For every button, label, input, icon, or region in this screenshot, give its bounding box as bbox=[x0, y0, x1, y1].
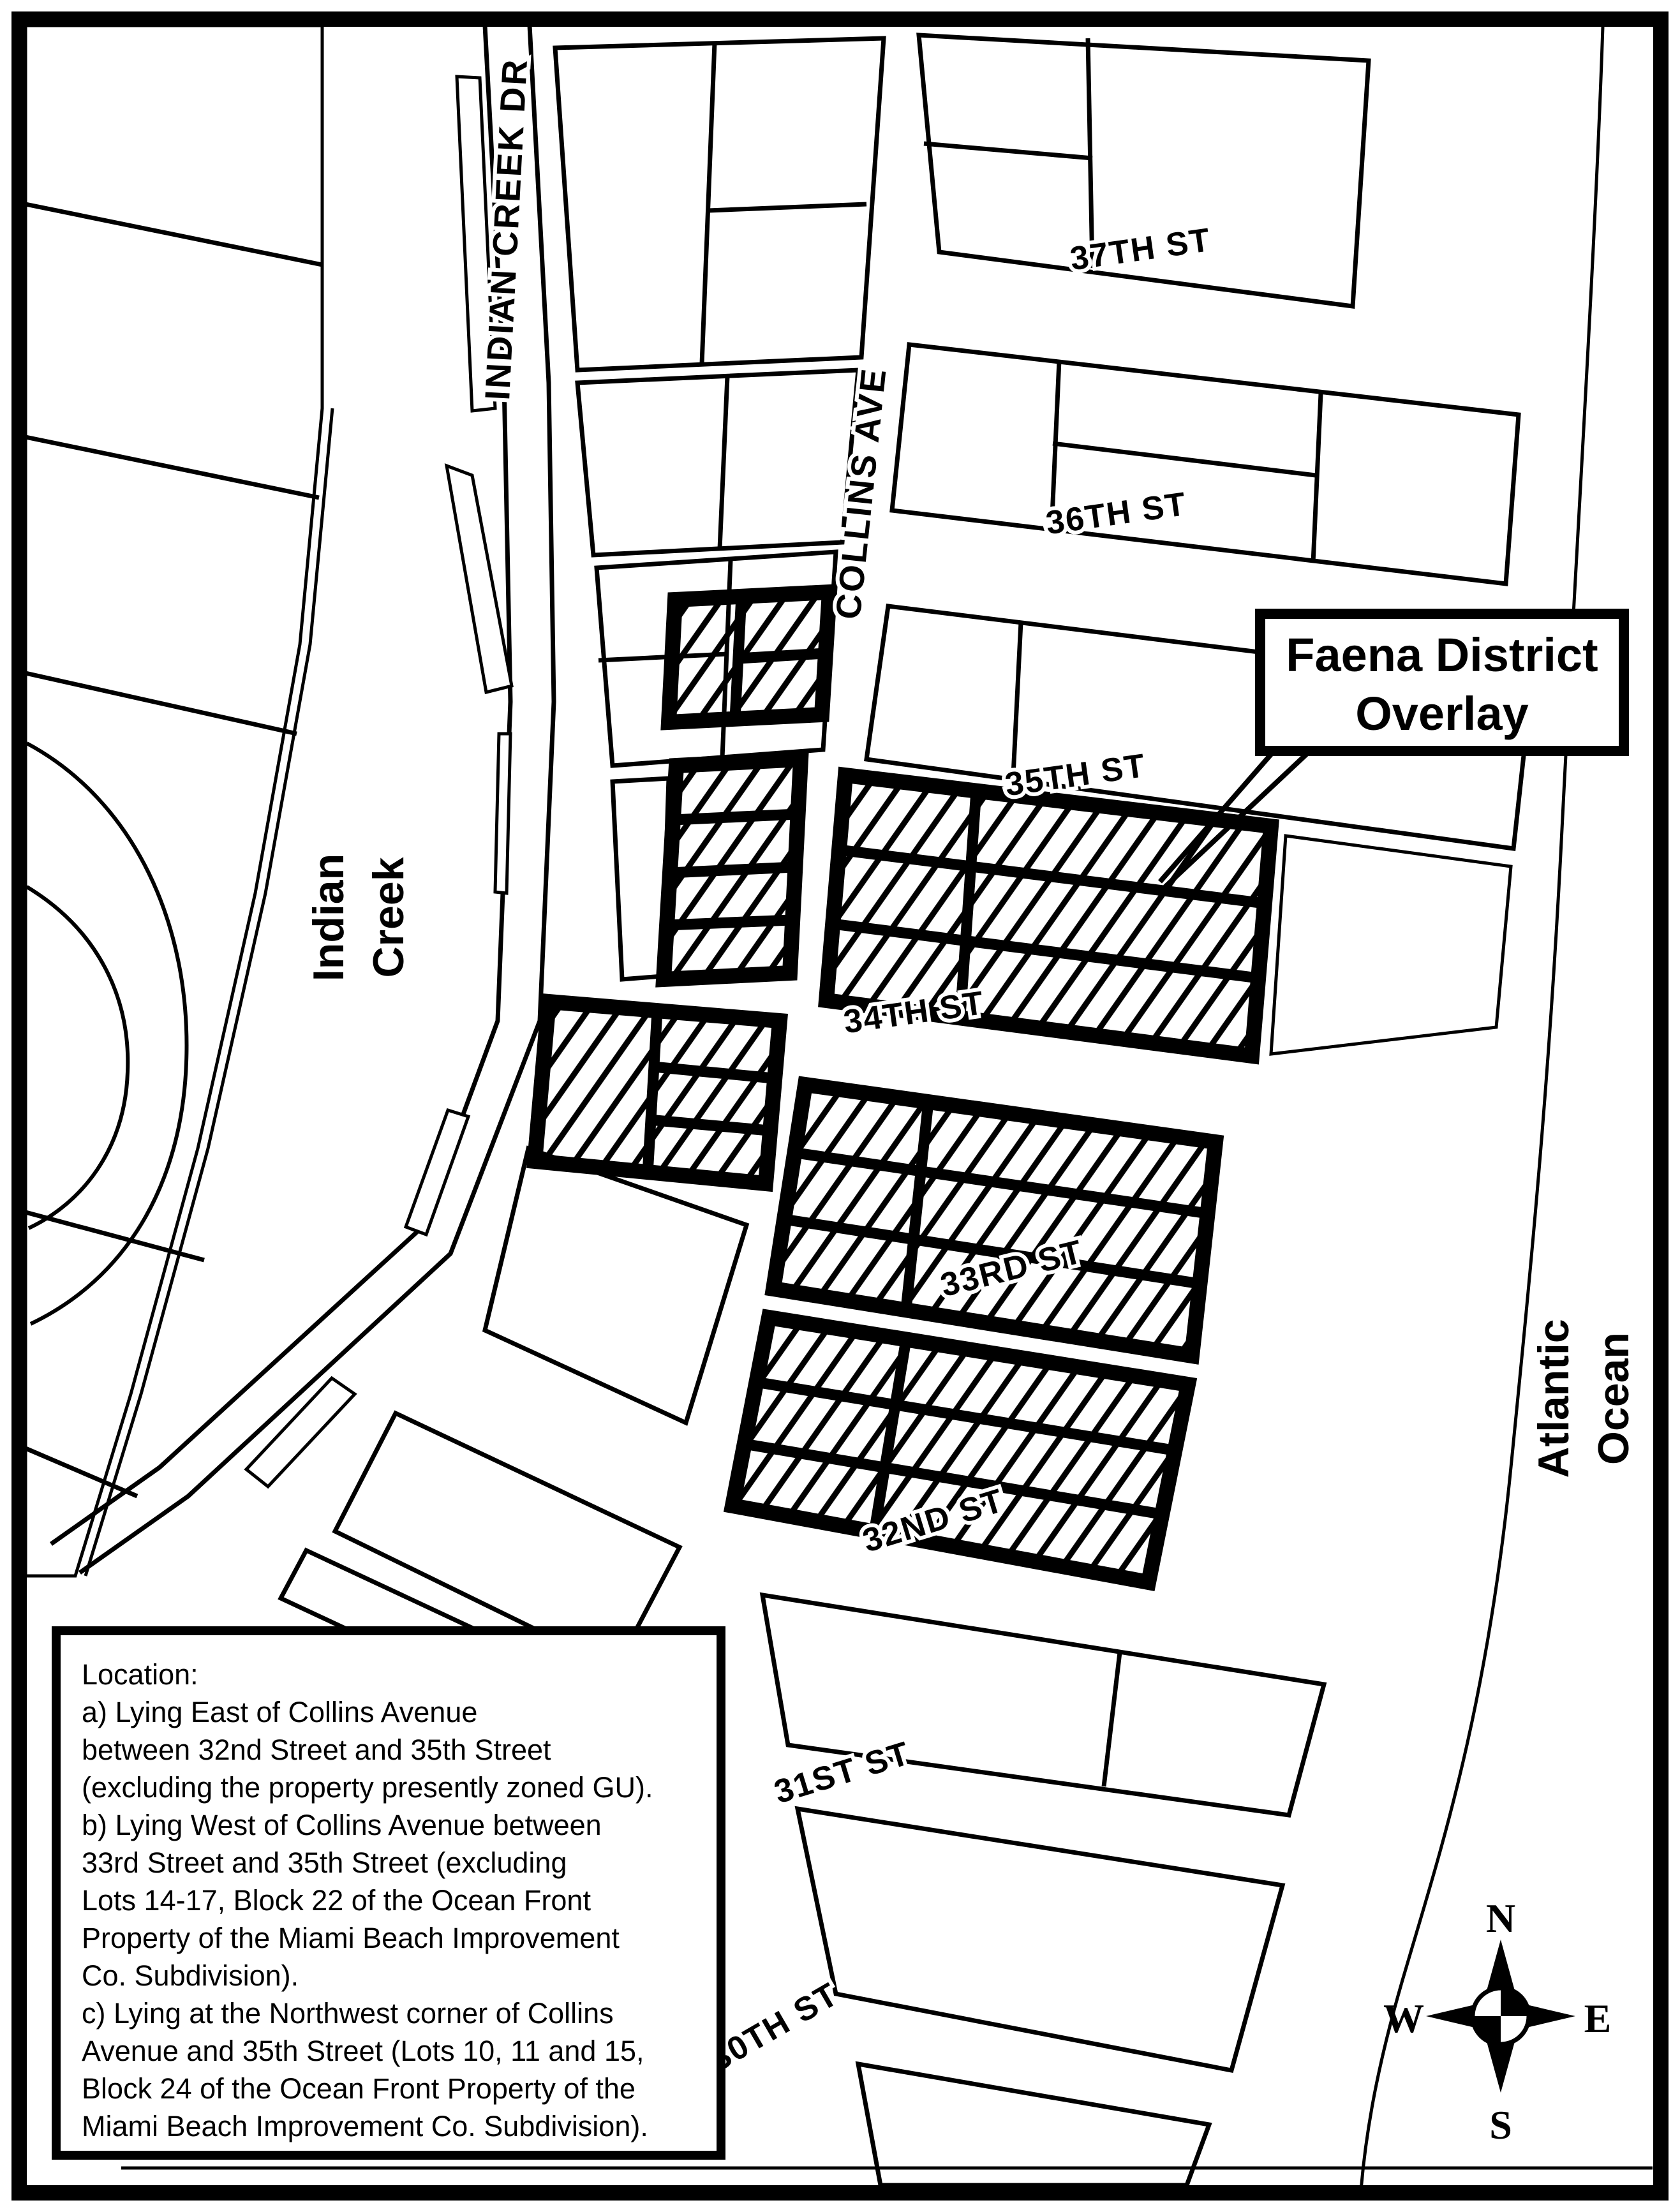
indian-creek-label-line2: Creek bbox=[364, 857, 413, 977]
compass-label-south: S bbox=[1489, 2102, 1512, 2148]
location-line: Miami Beach Improvement Co. Subdivision)… bbox=[82, 2110, 648, 2142]
overlay-divider bbox=[667, 920, 791, 925]
location-box: Location: a) Lying East of Collins Avenu… bbox=[56, 1631, 721, 2155]
location-line: a) Lying East of Collins Avenue bbox=[82, 1696, 477, 1728]
location-line: Lots 14-17, Block 22 of the Ocean Front bbox=[82, 1884, 591, 1917]
zoning-map: 37TH ST 36TH ST 35TH ST 34TH ST 33RD ST … bbox=[0, 0, 1680, 2212]
location-line: (excluding the property presently zoned … bbox=[82, 1771, 653, 1804]
location-line: Avenue and 35th Street (Lots 10, 11 and … bbox=[82, 2035, 644, 2067]
location-line: b) Lying West of Collins Avenue between bbox=[82, 1809, 602, 1841]
overlay-divider bbox=[673, 814, 798, 820]
location-line: Property of the Miami Beach Improvement bbox=[82, 1922, 620, 1954]
parcel-block bbox=[577, 370, 858, 555]
location-line: between 32nd Street and 35th Street bbox=[82, 1733, 551, 1766]
compass-label-north: N bbox=[1486, 1896, 1515, 1941]
beach-parcel bbox=[1271, 836, 1511, 1054]
atlantic-ocean-label-line1: Atlantic bbox=[1529, 1319, 1578, 1478]
callout-title-line1: Faena District bbox=[1286, 628, 1598, 681]
callout-title-line2: Overlay bbox=[1355, 687, 1529, 740]
location-line: 33rd Street and 35th Street (excluding bbox=[82, 1846, 567, 1879]
overlay-divider bbox=[738, 653, 825, 658]
atlantic-ocean-label-line2: Ocean bbox=[1589, 1332, 1638, 1465]
dock-parcel bbox=[495, 734, 510, 893]
compass-label-west: W bbox=[1383, 1996, 1424, 2041]
location-line: Location: bbox=[82, 1658, 198, 1691]
location-line: Block 24 of the Ocean Front Property of … bbox=[82, 2072, 636, 2105]
compass-label-east: E bbox=[1584, 1996, 1612, 2041]
location-line: Co. Subdivision). bbox=[82, 1959, 299, 1992]
overlay-divider bbox=[670, 867, 794, 873]
location-line: c) Lying at the Northwest corner of Coll… bbox=[82, 1997, 614, 2030]
indian-creek-label-line1: Indian bbox=[304, 854, 353, 981]
